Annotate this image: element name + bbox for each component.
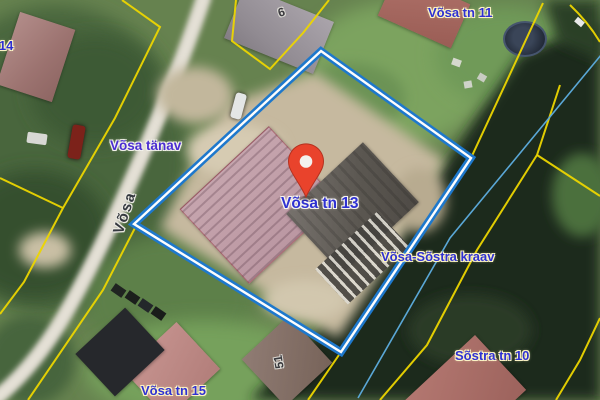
building-10-roof xyxy=(402,335,526,400)
garden-chair xyxy=(463,80,472,88)
map-canvas[interactable]: tn 14 9 Võsa tn 11 Võsa tänav Võsa Võsa … xyxy=(0,0,600,400)
marker-pin-body xyxy=(289,144,324,197)
label-ditch-vosa-sostra-kraav: Võsa-Sõstra kraav xyxy=(381,250,494,263)
building-51-roof xyxy=(242,316,332,400)
label-road-vosa: Võsa xyxy=(111,189,139,235)
garden-chair xyxy=(477,72,487,82)
building-14-roof xyxy=(0,12,75,102)
label-house-number-51: 51 xyxy=(272,354,286,369)
label-parcel-10: Sõstra tn 10 xyxy=(455,349,529,362)
label-parcel-14: tn 14 xyxy=(0,39,13,52)
location-marker[interactable] xyxy=(281,140,331,202)
parked-car-red xyxy=(67,124,86,160)
label-parcel-11: Võsa tn 11 xyxy=(428,6,492,19)
parked-vehicle xyxy=(111,283,127,298)
garden-chair xyxy=(451,58,462,68)
trampoline xyxy=(503,21,547,57)
label-street-vosa-tanav: Võsa tänav xyxy=(110,139,181,153)
trailer xyxy=(26,132,47,146)
marker-pin-hole xyxy=(300,155,313,168)
white-shed xyxy=(574,17,585,27)
parked-vehicle xyxy=(151,306,167,321)
parked-car-white xyxy=(230,92,247,120)
label-parcel-15: Võsa tn 15 xyxy=(141,384,206,397)
